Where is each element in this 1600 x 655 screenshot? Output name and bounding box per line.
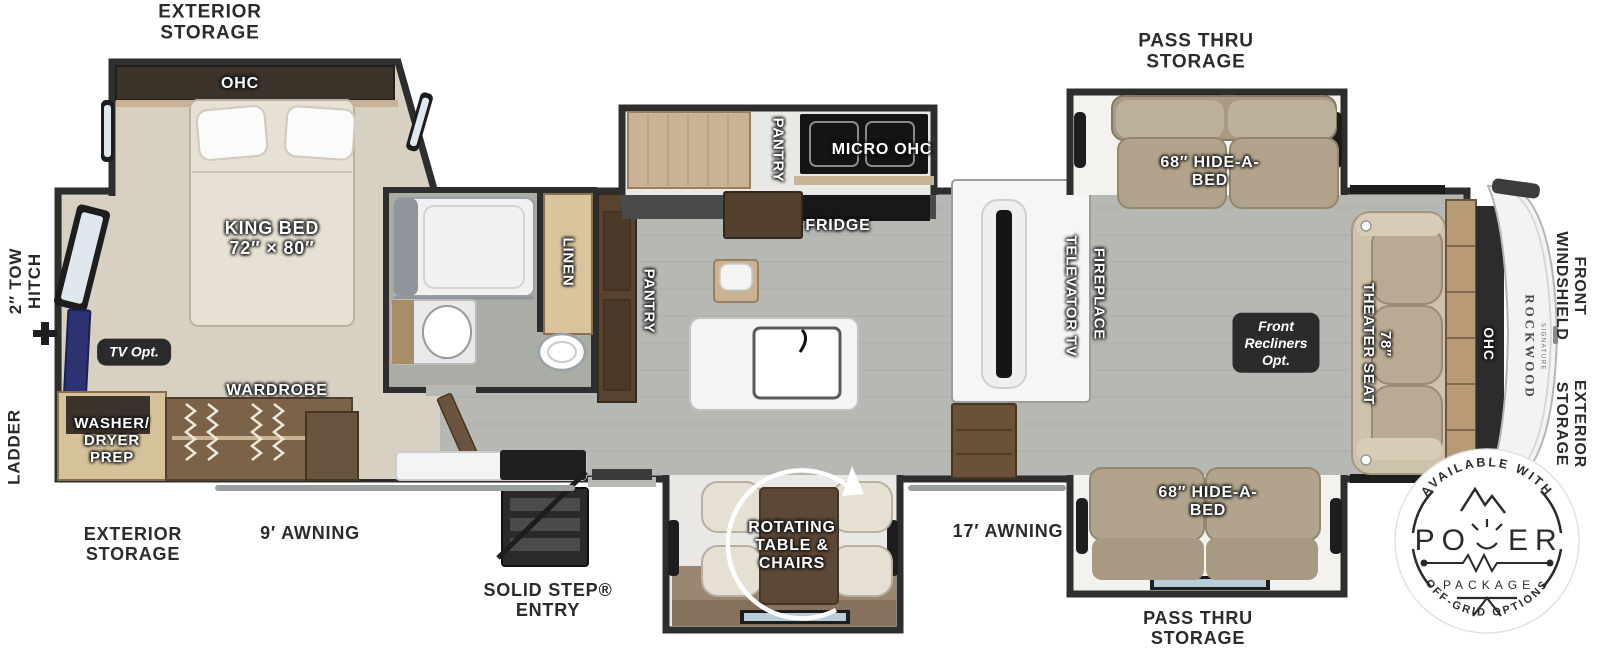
kitchen-upper-cabinets [628,112,750,188]
label-tow-hitch: 2″ TOW HITCH [6,248,44,314]
entry-step-top [500,450,586,480]
fridge-box [724,192,802,238]
label-fridge: FRIDGE [805,217,870,235]
cupholder-icon [1361,221,1371,231]
label-front-recliners-opt: Front Recliners Opt. [1232,313,1319,373]
label-exterior-storage-top: EXTERIOR STORAGE [158,2,262,45]
label-rockwood-logo: ROCKWOOD [1522,294,1537,400]
label-awning-17: 17′ AWNING [953,521,1064,541]
cupholder-icon [1361,455,1371,465]
label-rockwood-signature: SIGNATURE [1539,323,1546,371]
label-pass-thru-storage-bottom: PASS THRU STORAGE [1143,608,1253,648]
vanity-cabinet [392,300,414,364]
label-washer-dryer: WASHER/ DRYER PREP [74,416,150,466]
slide-side-window-icon [1074,112,1086,168]
label-linen: LINEN [559,238,576,287]
label-awning-9: 9′ AWNING [260,523,360,543]
stool-seat [720,264,752,290]
label-front-windshield: FRONT WINDSHIELD [1552,231,1588,340]
label-theater-seat: 78″ THEATER SEAT [1359,283,1393,405]
toilet [539,334,585,370]
power-package-badge: AVAILABLE WITH PO ER PACKAGE OFF-GRID OP… [1392,446,1582,636]
pantry-cabinet-lower [598,194,636,402]
label-pantry-lower: PANTRY [640,269,657,334]
step-tread [510,538,580,551]
pillow-left [196,105,268,161]
label-hide-a-bed-top: 68″ HIDE-A- BED [1160,154,1259,190]
sofa-back-cushion [1116,100,1224,138]
badge-power-left: PO [1415,524,1472,557]
label-wardrobe: WARDROBE [226,382,328,400]
sofa-seat-cushion [1206,538,1318,580]
pillow-right [284,106,355,161]
label-exterior-storage-bottom: EXTERIOR STORAGE [84,524,182,564]
slide-side-window-icon [1330,498,1342,554]
shower-wall-surround [394,198,418,296]
label-tv-opt: TV Opt. [97,339,171,366]
awning-rail-9ft [215,485,575,491]
slide-side-window-icon [1076,498,1088,554]
label-ladder: LADDER [4,409,23,485]
hide-a-bed-slide-top [1070,92,1344,208]
label-ohc-bedroom: OHC [221,75,259,93]
sofa-seat-cushion [1092,538,1204,580]
badge-power-right: ER [1508,524,1564,557]
label-ohc-front: OHC [1480,327,1496,361]
front-window-top-icon [1350,185,1445,194]
label-pass-thru-storage-top: PASS THRU STORAGE [1138,31,1254,74]
front-ohc-cabinet [1446,200,1476,474]
label-pantry-upper: PANTRY [769,118,786,183]
badge-package: PACKAGE [1443,578,1535,592]
step-tread [510,518,580,531]
vanity-sink [423,306,471,358]
island-sink [754,328,840,398]
pantry-door-panel [604,212,630,290]
label-hide-a-bed-bottom: 68″ HIDE-A- BED [1158,484,1257,520]
floorplan-canvas: EXTERIOR STORAGE PASS THRU STORAGE 2″ TO… [0,0,1600,655]
bedroom-window-left-glass [104,105,111,157]
awning-rail-17ft [908,485,1066,491]
label-micro-ohc: MICRO OHC [832,141,933,159]
televator-tv-screen [996,210,1012,378]
slide-window-glass [1154,579,1266,587]
tow-hitch-icon [33,322,57,345]
dinette-side-window-icon [668,520,679,576]
label-solid-step: SOLID STEP® ENTRY [483,580,612,620]
dinette-chair [832,546,892,596]
label-fireplace: FIREPLACE [1090,248,1107,340]
bedroom-tv [64,309,91,402]
media-cabinet [952,404,1016,478]
stove-shelf [794,176,934,185]
wardrobe-end-cabinet [306,412,358,480]
label-rotating-table: ROTATING TABLE & CHAIRS [748,519,836,573]
sofa-back-cushion [1228,100,1336,138]
label-king-bed: KING BED 72″ × 80″ [225,218,319,258]
pantry-door-panel [604,300,630,390]
label-televator-tv: TELEVATOR TV [1062,235,1079,356]
entry-threshold [592,469,652,480]
